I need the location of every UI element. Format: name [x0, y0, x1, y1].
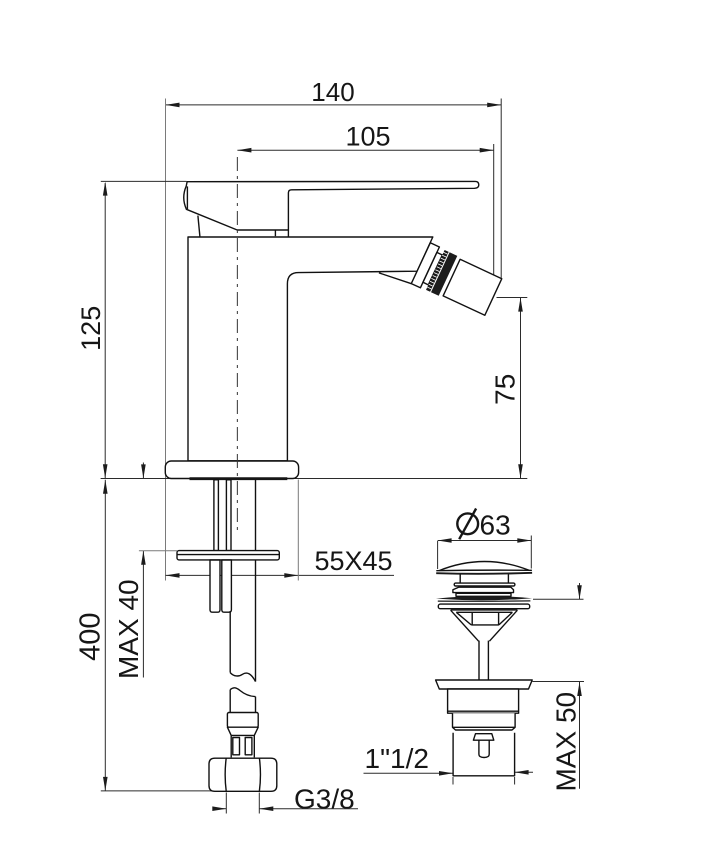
- svg-text:75: 75: [490, 374, 521, 405]
- svg-text:55X45: 55X45: [315, 546, 393, 576]
- svg-text:140: 140: [311, 77, 354, 107]
- svg-text:400: 400: [75, 613, 107, 661]
- svg-text:MAX 50: MAX 50: [551, 692, 582, 792]
- svg-text:125: 125: [76, 306, 106, 351]
- svg-text:63: 63: [480, 510, 511, 541]
- svg-text:1"1/2: 1"1/2: [365, 743, 429, 774]
- svg-text:MAX 40: MAX 40: [113, 579, 144, 679]
- svg-text:105: 105: [345, 122, 390, 152]
- svg-text:G3/8: G3/8: [294, 784, 355, 815]
